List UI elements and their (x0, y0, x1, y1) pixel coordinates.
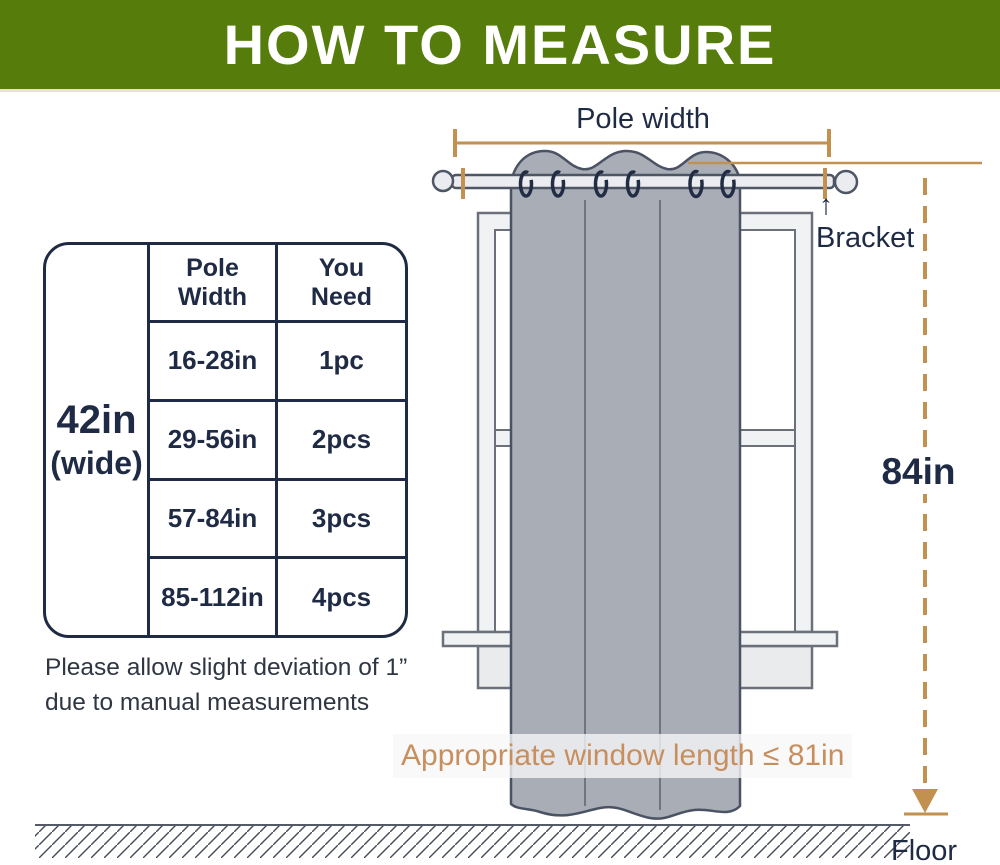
window-length-label: Appropriate window length ≤ 81in (393, 734, 852, 778)
size-table: 42in (wide) Pole Width You Need 16-28in … (43, 242, 408, 638)
pole-width-label: Pole width (543, 103, 743, 136)
bracket-label: Bracket (816, 222, 914, 255)
size-table-grid: Pole Width You Need 16-28in 1pc 29-56in … (150, 245, 405, 635)
panels-needed: 1pc (278, 323, 405, 399)
pole-width-range: 29-56in (150, 402, 278, 478)
panel-width-unit: (wide) (50, 445, 142, 482)
panels-needed: 3pcs (278, 481, 405, 557)
column-header-pole-width: Pole Width (150, 245, 278, 320)
curtain-panel (511, 151, 740, 819)
pole-width-range: 57-84in (150, 481, 278, 557)
size-table-header-row: Pole Width You Need (150, 245, 405, 323)
page-title: HOW TO MEASURE (224, 12, 777, 77)
column-header-text: You Need (302, 254, 382, 312)
pole-width-range: 85-112in (150, 559, 278, 635)
panels-needed: 4pcs (278, 559, 405, 635)
infographic-canvas: HOW TO MEASURE (0, 0, 1000, 865)
note-line-2: due to manual measurements (45, 685, 407, 720)
column-header-you-need: You Need (278, 245, 405, 320)
floor (35, 825, 910, 858)
bracket-up-arrow-icon: ↑ (812, 189, 840, 221)
height-arrow-head (912, 789, 938, 813)
measurement-note: Please allow slight deviation of 1” due … (45, 650, 407, 720)
panels-needed: 2pcs (278, 402, 405, 478)
size-table-side-label: 42in (wide) (46, 245, 150, 635)
note-line-1: Please allow slight deviation of 1” (45, 650, 407, 685)
curtain (511, 151, 740, 819)
header-banner: HOW TO MEASURE (0, 0, 1000, 92)
rod-bar (452, 175, 834, 188)
table-row: 85-112in 4pcs (150, 559, 405, 635)
table-row: 16-28in 1pc (150, 323, 405, 402)
pole-width-range: 16-28in (150, 323, 278, 399)
column-header-text: Pole Width (173, 254, 253, 312)
rod-finial-left (433, 171, 453, 191)
panel-width-value: 42in (56, 398, 136, 443)
floor-hatching (35, 826, 910, 858)
table-row: 57-84in 3pcs (150, 481, 405, 560)
height-84in-label: 84in (870, 450, 967, 494)
table-row: 29-56in 2pcs (150, 402, 405, 481)
floor-label: Floor (891, 835, 957, 865)
